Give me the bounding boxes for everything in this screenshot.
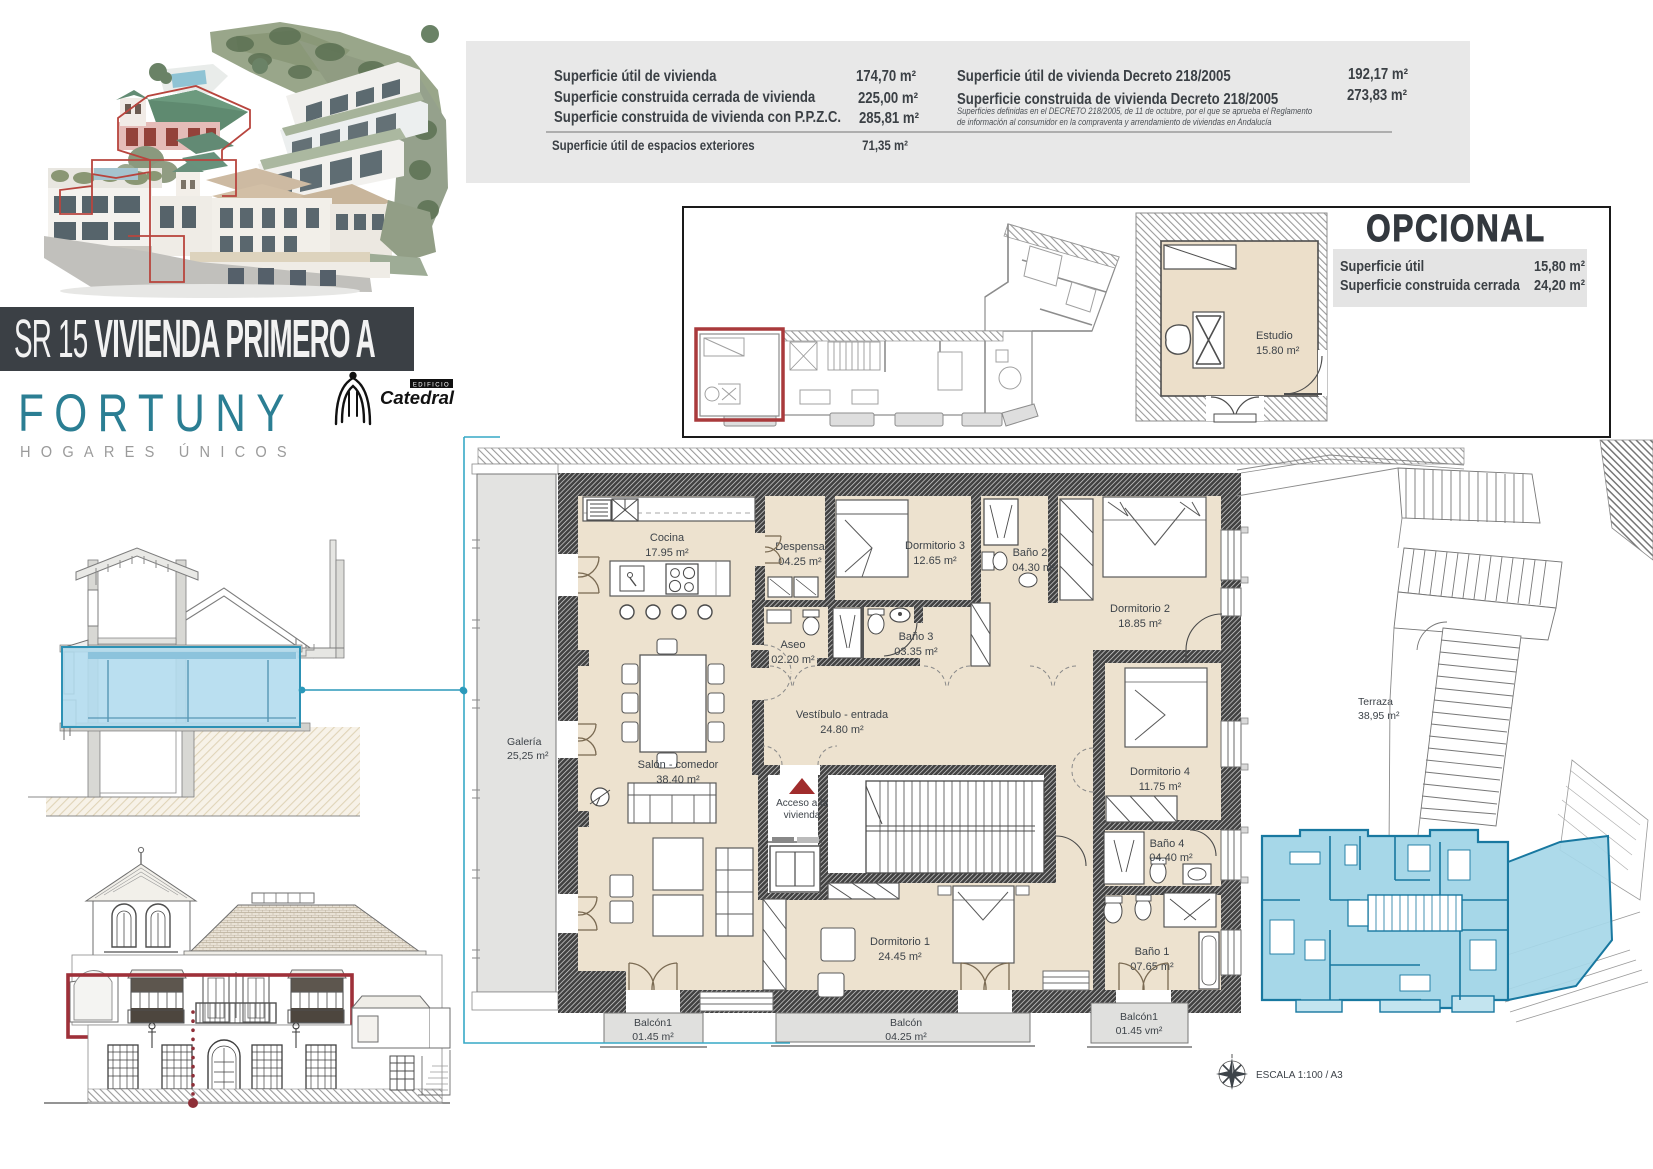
svg-text:15,80 m²: 15,80 m² xyxy=(1534,257,1585,274)
svg-text:Balcón: Balcón xyxy=(890,1017,922,1029)
svg-text:Superficie útil: Superficie útil xyxy=(1340,257,1424,274)
svg-text:Despensa: Despensa xyxy=(775,541,825,553)
svg-text:03.35 m²: 03.35 m² xyxy=(894,646,938,658)
svg-text:Acceso a la: Acceso a la xyxy=(776,798,828,809)
svg-text:Cocina: Cocina xyxy=(650,532,685,544)
svg-text:71,35 m²: 71,35 m² xyxy=(862,138,908,153)
svg-text:Superficie construida cerrada: Superficie construida cerrada de viviend… xyxy=(554,89,816,106)
svg-text:04.25 m²: 04.25 m² xyxy=(885,1031,927,1043)
svg-text:174,70 m²: 174,70 m² xyxy=(856,68,916,85)
svg-text:Balcón1: Balcón1 xyxy=(1120,1011,1158,1023)
svg-text:Salón - comedor: Salón - comedor xyxy=(638,759,719,771)
svg-text:01.45 vm²: 01.45 vm² xyxy=(1116,1025,1163,1037)
svg-text:SR 15 VIVIENDA PRIMERO A: SR 15 VIVIENDA PRIMERO A xyxy=(14,309,375,369)
svg-text:192,17 m²: 192,17 m² xyxy=(1348,66,1408,83)
svg-text:OPCIONAL: OPCIONAL xyxy=(1366,207,1546,249)
svg-text:vivienda: vivienda xyxy=(784,810,821,821)
svg-text:Aseo: Aseo xyxy=(780,639,805,651)
svg-text:Dormitorio 3: Dormitorio 3 xyxy=(905,540,965,552)
svg-text:Vestíbulo - entrada: Vestíbulo - entrada xyxy=(796,709,889,721)
svg-text:273,83 m²: 273,83 m² xyxy=(1347,87,1407,104)
svg-text:Dormitorio 1: Dormitorio 1 xyxy=(870,936,930,948)
svg-text:Terraza: Terraza xyxy=(1358,696,1393,708)
svg-text:04.30 m²: 04.30 m² xyxy=(1012,562,1056,574)
svg-text:04.25 m²: 04.25 m² xyxy=(778,556,822,568)
svg-text:285,81 m²: 285,81 m² xyxy=(859,110,919,127)
svg-text:225,00 m²: 225,00 m² xyxy=(858,90,918,107)
svg-text:12.65 m²: 12.65 m² xyxy=(913,555,957,567)
svg-text:25,25 m²: 25,25 m² xyxy=(507,750,549,762)
svg-text:Baño 1: Baño 1 xyxy=(1135,946,1170,958)
svg-text:38,95 m²: 38,95 m² xyxy=(1358,710,1400,722)
svg-text:Dormitorio 4: Dormitorio 4 xyxy=(1130,766,1190,778)
svg-text:Superficie útil de vivienda De: Superficie útil de vivienda Decreto 218/… xyxy=(957,68,1231,85)
svg-text:Dormitorio 2: Dormitorio 2 xyxy=(1110,603,1170,615)
svg-text:Baño 4: Baño 4 xyxy=(1150,838,1185,850)
svg-text:24.45 m²: 24.45 m² xyxy=(878,951,922,963)
svg-text:Superficies definidas en el DE: Superficies definidas en el DECRETO 218/… xyxy=(957,105,1312,116)
svg-text:de información al consumido: de información al consumidor en la compr… xyxy=(957,116,1272,127)
svg-text:Baño 2: Baño 2 xyxy=(1013,547,1048,559)
svg-text:Superficie útil de espacios ex: Superficie útil de espacios exteriores xyxy=(552,138,755,153)
svg-text:Balcón1: Balcón1 xyxy=(634,1017,672,1029)
svg-text:24.80 m²: 24.80 m² xyxy=(820,724,864,736)
svg-text:17.95 m²: 17.95 m² xyxy=(645,547,689,559)
svg-text:Baño 3: Baño 3 xyxy=(899,631,934,643)
svg-text:38.40 m²: 38.40 m² xyxy=(656,774,700,786)
svg-text:15.80 m²: 15.80 m² xyxy=(1256,345,1300,357)
svg-text:18.85 m²: 18.85 m² xyxy=(1118,618,1162,630)
svg-text:11.75 m²: 11.75 m² xyxy=(1139,781,1182,793)
svg-text:Superficie útil de vivienda: Superficie útil de vivienda xyxy=(554,68,717,85)
svg-text:02.20 m²: 02.20 m² xyxy=(771,654,815,666)
svg-text:Galería: Galería xyxy=(507,736,542,748)
svg-text:04.40 m²: 04.40 m² xyxy=(1149,852,1193,864)
svg-text:Superficie construida de vivie: Superficie construida de vivienda con P.… xyxy=(554,109,841,126)
svg-text:Catedral: Catedral xyxy=(380,387,455,408)
svg-text:01.45 m²: 01.45 m² xyxy=(632,1031,674,1043)
svg-text:Superficie construida cerrada: Superficie construida cerrada xyxy=(1340,276,1520,293)
svg-text:ESCALA 1:100 / A3: ESCALA 1:100 / A3 xyxy=(1256,1070,1343,1081)
svg-text:24,20 m²: 24,20 m² xyxy=(1534,276,1585,293)
svg-text:Estudio: Estudio xyxy=(1256,330,1293,342)
svg-text:FORTUNY: FORTUNY xyxy=(18,385,295,444)
svg-text:HOGARES ÚNICOS: HOGARES ÚNICOS xyxy=(20,443,297,461)
